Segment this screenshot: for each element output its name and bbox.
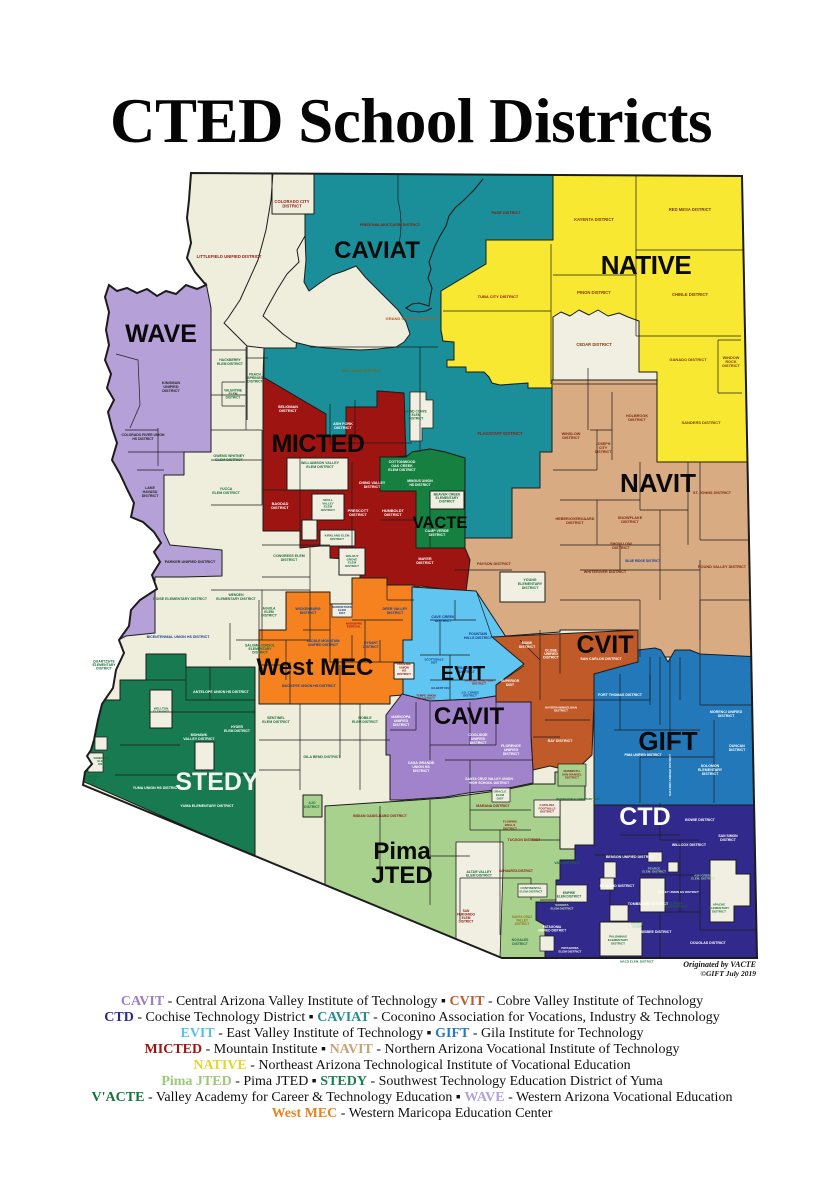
svg-text:BISBEE DISTRICT: BISBEE DISTRICT xyxy=(641,930,673,934)
svg-text:JTED: JTED xyxy=(371,862,432,889)
svg-text:LITTLEFIELD UNIFIED DISTRICT: LITTLEFIELD UNIFIED DISTRICT xyxy=(197,254,262,259)
svg-text:SANTA CRUZ VALLEY UNIONHIGH SC: SANTA CRUZ VALLEY UNIONHIGH SCHOOL DISTR… xyxy=(465,777,513,785)
svg-text:SHOW LOWDISTRICT: SHOW LOWDISTRICT xyxy=(610,542,632,550)
svg-text:HUMBOLDTDISTRICT: HUMBOLDTDISTRICT xyxy=(382,509,404,517)
svg-text:NATIVE: NATIVE xyxy=(601,250,692,280)
svg-text:Pima: Pima xyxy=(373,838,431,865)
svg-text:MARICOPAUNIFIEDDISTRICT: MARICOPAUNIFIEDDISTRICT xyxy=(391,715,411,727)
svg-text:TOMBSTONE DISTRICT: TOMBSTONE DISTRICT xyxy=(628,902,669,906)
svg-text:PINON DISTRICT: PINON DISTRICT xyxy=(577,290,611,295)
svg-text:SELIGMANDISTRICT: SELIGMANDISTRICT xyxy=(278,405,298,413)
svg-text:MINGUS UNIONHS DISTRICT: MINGUS UNIONHS DISTRICT xyxy=(407,479,433,487)
svg-text:NATIVE - Northeast Arizona Tec: NATIVE - Northeast Arizona Technological… xyxy=(193,1058,630,1073)
svg-text:VACTE: VACTE xyxy=(413,514,468,532)
svg-text:PARKER UNIFIED DISTRICT: PARKER UNIFIED DISTRICT xyxy=(165,560,216,564)
svg-text:West MEC: West MEC xyxy=(257,654,374,681)
svg-text:EVIT: EVIT xyxy=(441,663,485,685)
svg-text:TUCSON DISTRICT: TUCSON DISTRICT xyxy=(508,838,542,842)
svg-text:CEDAR DISTRICT: CEDAR DISTRICT xyxy=(576,342,612,347)
svg-text:GILBERT DIST: GILBERT DIST xyxy=(431,686,451,690)
svg-text:CHINLE DISTRICT: CHINLE DISTRICT xyxy=(672,292,709,297)
svg-text:YUMA ELEMENTARY DISTRICT: YUMA ELEMENTARY DISTRICT xyxy=(180,804,234,808)
svg-text:CAVIT: CAVIT xyxy=(434,703,505,730)
svg-text:PATAGONIAELEM DISTRICT: PATAGONIAELEM DISTRICT xyxy=(559,946,582,953)
svg-text:COTTONWOODOAK CREEKELEM DISTRI: COTTONWOODOAK CREEKELEM DISTRICT xyxy=(388,460,416,472)
svg-text:ROUND VALLEY DISTRICT: ROUND VALLEY DISTRICT xyxy=(698,565,747,569)
svg-text:Originated by VACTE: Originated by VACTE xyxy=(683,960,756,969)
svg-text:V'ACTE - Valley Academy for Ca: V'ACTE - Valley Academy for Career & Tec… xyxy=(92,1090,733,1105)
svg-text:NACO ELEM. DISTRICT: NACO ELEM. DISTRICT xyxy=(620,960,654,964)
svg-text:SAHUARITA DISTRICT: SAHUARITA DISTRICT xyxy=(499,869,533,873)
svg-text:RAY DISTRICT: RAY DISTRICT xyxy=(548,739,574,743)
svg-text:TEMPE UNIONHS DISTRICT: TEMPE UNIONHS DISTRICT xyxy=(416,693,435,700)
svg-text:SKULLVALLEYELEMDISTRICT: SKULLVALLEYELEMDISTRICT xyxy=(321,498,335,512)
svg-text:STEDY: STEDY xyxy=(175,768,259,796)
svg-text:CAVIAT: CAVIAT xyxy=(334,237,420,264)
svg-text:HACKBERRYELEM DISTRICT: HACKBERRYELEM DISTRICT xyxy=(217,358,244,366)
svg-text:YUMA UNION HS DISTRICT: YUMA UNION HS DISTRICT xyxy=(133,786,180,790)
svg-text:PAGE DISTRICT: PAGE DISTRICT xyxy=(491,211,521,215)
svg-text:MARANA DISTRICT: MARANA DISTRICT xyxy=(476,804,510,808)
svg-text:HOLBROOKDISTRICT: HOLBROOKDISTRICT xyxy=(626,414,648,422)
svg-text:Pima JTED - Pima JTED ▪ STEDY: Pima JTED - Pima JTED ▪ STEDY - Southwes… xyxy=(161,1074,663,1089)
svg-text:WELLTONELEM DIST: WELLTONELEM DIST xyxy=(153,706,169,713)
svg-text:CATALINAFOOTHILLSDISTRICT: CATALINAFOOTHILLSDISTRICT xyxy=(539,803,556,814)
svg-text:BAGDADDISTRICT: BAGDADDISTRICT xyxy=(271,502,289,510)
svg-text:ANTELOPE UNION HS DISTRICT: ANTELOPE UNION HS DISTRICT xyxy=(193,690,250,694)
svg-text:CTD: CTD xyxy=(619,803,670,831)
svg-text:DYSARTDISTRICT: DYSARTDISTRICT xyxy=(363,641,380,649)
svg-text:West MEC - Western Maricopa Ed: West MEC - Western Maricopa Education Ce… xyxy=(272,1106,553,1121)
svg-text:CTED School Districts: CTED School Districts xyxy=(110,86,712,156)
svg-text:WILLIAMS DISTRICT: WILLIAMS DISTRICT xyxy=(342,368,382,373)
svg-text:GIFT: GIFT xyxy=(638,726,697,756)
svg-text:NADABURGESPECIAL: NADABURGESPECIAL xyxy=(346,621,362,628)
svg-text:WAVE: WAVE xyxy=(125,320,197,348)
svg-text:KAYENTA DISTRICT: KAYENTA DISTRICT xyxy=(574,217,614,222)
svg-text:BOWIE DISTRICT: BOWIE DISTRICT xyxy=(685,818,716,822)
svg-text:NAVIT: NAVIT xyxy=(620,468,696,498)
svg-text:GANADO DISTRICT: GANADO DISTRICT xyxy=(669,357,707,362)
svg-text:SADDLE MOUNTAINUNIFIED DISTRIC: SADDLE MOUNTAINUNIFIED DISTRICT xyxy=(307,639,340,647)
svg-text:BENSON UNIFIED DISTRICT: BENSON UNIFIED DISTRICT xyxy=(606,855,655,859)
svg-text:VALLEY UNION HS DISTRICT: VALLEY UNION HS DISTRICT xyxy=(657,890,699,894)
svg-text:CAVIT - Central Arizona Valley: CAVIT - Central Arizona Valley Institute… xyxy=(121,994,703,1009)
svg-text:RED MESA DISTRICT: RED MESA DISTRICT xyxy=(669,207,712,212)
svg-text:FORT THOMAS DISTRICT: FORT THOMAS DISTRICT xyxy=(598,693,643,697)
svg-text:KINGMANUNIFIEDDISTRICT: KINGMANUNIFIEDDISTRICT xyxy=(162,381,181,393)
svg-text:MICTED: MICTED xyxy=(272,430,365,458)
svg-text:DOUGLAS DISTRICT: DOUGLAS DISTRICT xyxy=(690,941,726,945)
svg-text:VAIL DISTRICT: VAIL DISTRICT xyxy=(554,861,580,865)
svg-text:NOGALESDISTRICT: NOGALESDISTRICT xyxy=(512,938,530,946)
svg-text:GILA BEND DISTRICT: GILA BEND DISTRICT xyxy=(303,755,341,759)
svg-text:WALNUTGROVEELEMDISTRICT: WALNUTGROVEELEMDISTRICT xyxy=(345,554,359,568)
svg-text:J.O. COMBSDISTRICT: J.O. COMBSDISTRICT xyxy=(461,690,479,697)
svg-text:CONTINENTALELEM DISTRICT: CONTINENTALELEM DISTRICT xyxy=(520,886,543,893)
svg-text:OWENS WHITNEYELEM DISTRICT: OWENS WHITNEYELEM DISTRICT xyxy=(213,454,245,462)
svg-text:WHITERIVER DISTRICT: WHITERIVER DISTRICT xyxy=(584,570,627,574)
svg-text:PAYSON DISTRICT: PAYSON DISTRICT xyxy=(477,562,512,566)
svg-text:WINSLOWDISTRICT: WINSLOWDISTRICT xyxy=(562,432,581,440)
svg-text:DOUBLEADOBE: DOUBLEADOBE xyxy=(631,921,643,928)
svg-text:QUARTZSITEELEMENTARYDISTRICT: QUARTZSITEELEMENTARYDISTRICT xyxy=(93,659,117,670)
svg-text:©GIFT July 2019: ©GIFT July 2019 xyxy=(700,969,756,978)
svg-text:EVIT - East Valley Institute o: EVIT - East Valley Institute of Technolo… xyxy=(180,1026,643,1041)
svg-text:ST. DAVID DISTRICT: ST. DAVID DISTRICT xyxy=(600,884,635,888)
svg-text:INDIAN OASIS-BABO DISTRICT: INDIAN OASIS-BABO DISTRICT xyxy=(353,814,408,818)
svg-text:ASH FORKDISTRICT: ASH FORKDISTRICT xyxy=(333,422,353,430)
svg-text:DUNCANDISTRICT: DUNCANDISTRICT xyxy=(729,744,746,752)
svg-text:FLAGSTAFF DISTRICT: FLAGSTAFF DISTRICT xyxy=(477,431,522,436)
svg-text:CVIT: CVIT xyxy=(577,631,634,659)
svg-text:SANDERS DISTRICT: SANDERS DISTRICT xyxy=(681,420,721,425)
svg-text:TUBA CITY DISTRICT: TUBA CITY DISTRICT xyxy=(478,294,519,299)
svg-text:ASH CREEKELEM. DISTRICT: ASH CREEKELEM. DISTRICT xyxy=(691,873,715,880)
svg-text:GRAND CANYON DISTRICT: GRAND CANYON DISTRICT xyxy=(386,316,439,321)
svg-text:BOISE ELEMENTARY DISTRICT: BOISE ELEMENTARY DISTRICT xyxy=(153,597,208,601)
svg-text:BLUE RIDGE DISTRICT: BLUE RIDGE DISTRICT xyxy=(625,559,660,563)
svg-text:CTD - Cochise Technology Distr: CTD - Cochise Technology District ▪ CAVI… xyxy=(104,1010,720,1025)
svg-text:SAFFORD UNIFIED DISTRICT: SAFFORD UNIFIED DISTRICT xyxy=(668,754,672,796)
svg-text:MICTED - Mountain Institute ▪: MICTED - Mountain Institute ▪ NAVIT - No… xyxy=(145,1042,680,1057)
svg-text:SAN SIMONDISTRICT: SAN SIMONDISTRICT xyxy=(718,834,738,842)
svg-text:FREDONIA-MOCCASIN DISTRICT: FREDONIA-MOCCASIN DISTRICT xyxy=(360,223,421,227)
svg-text:BICENTENNIAL UNION HS DISTRICT: BICENTENNIAL UNION HS DISTRICT xyxy=(147,635,211,639)
svg-text:PRESCOTTDISTRICT: PRESCOTTDISTRICT xyxy=(348,509,369,517)
svg-text:ST. JOHNS DISTRICT: ST. JOHNS DISTRICT xyxy=(693,491,732,495)
svg-text:WILLCOX DISTRICT: WILLCOX DISTRICT xyxy=(672,843,707,847)
svg-text:REDINGTON ELEMENTARY DIST: REDINGTON ELEMENTARY DIST xyxy=(556,797,600,801)
svg-text:BUCKEYE UNION HS DISTRICT: BUCKEYE UNION HS DISTRICT xyxy=(282,684,337,688)
svg-text:ALTAR VALLEYELEM DISTRICT: ALTAR VALLEYELEM DISTRICT xyxy=(466,870,493,878)
